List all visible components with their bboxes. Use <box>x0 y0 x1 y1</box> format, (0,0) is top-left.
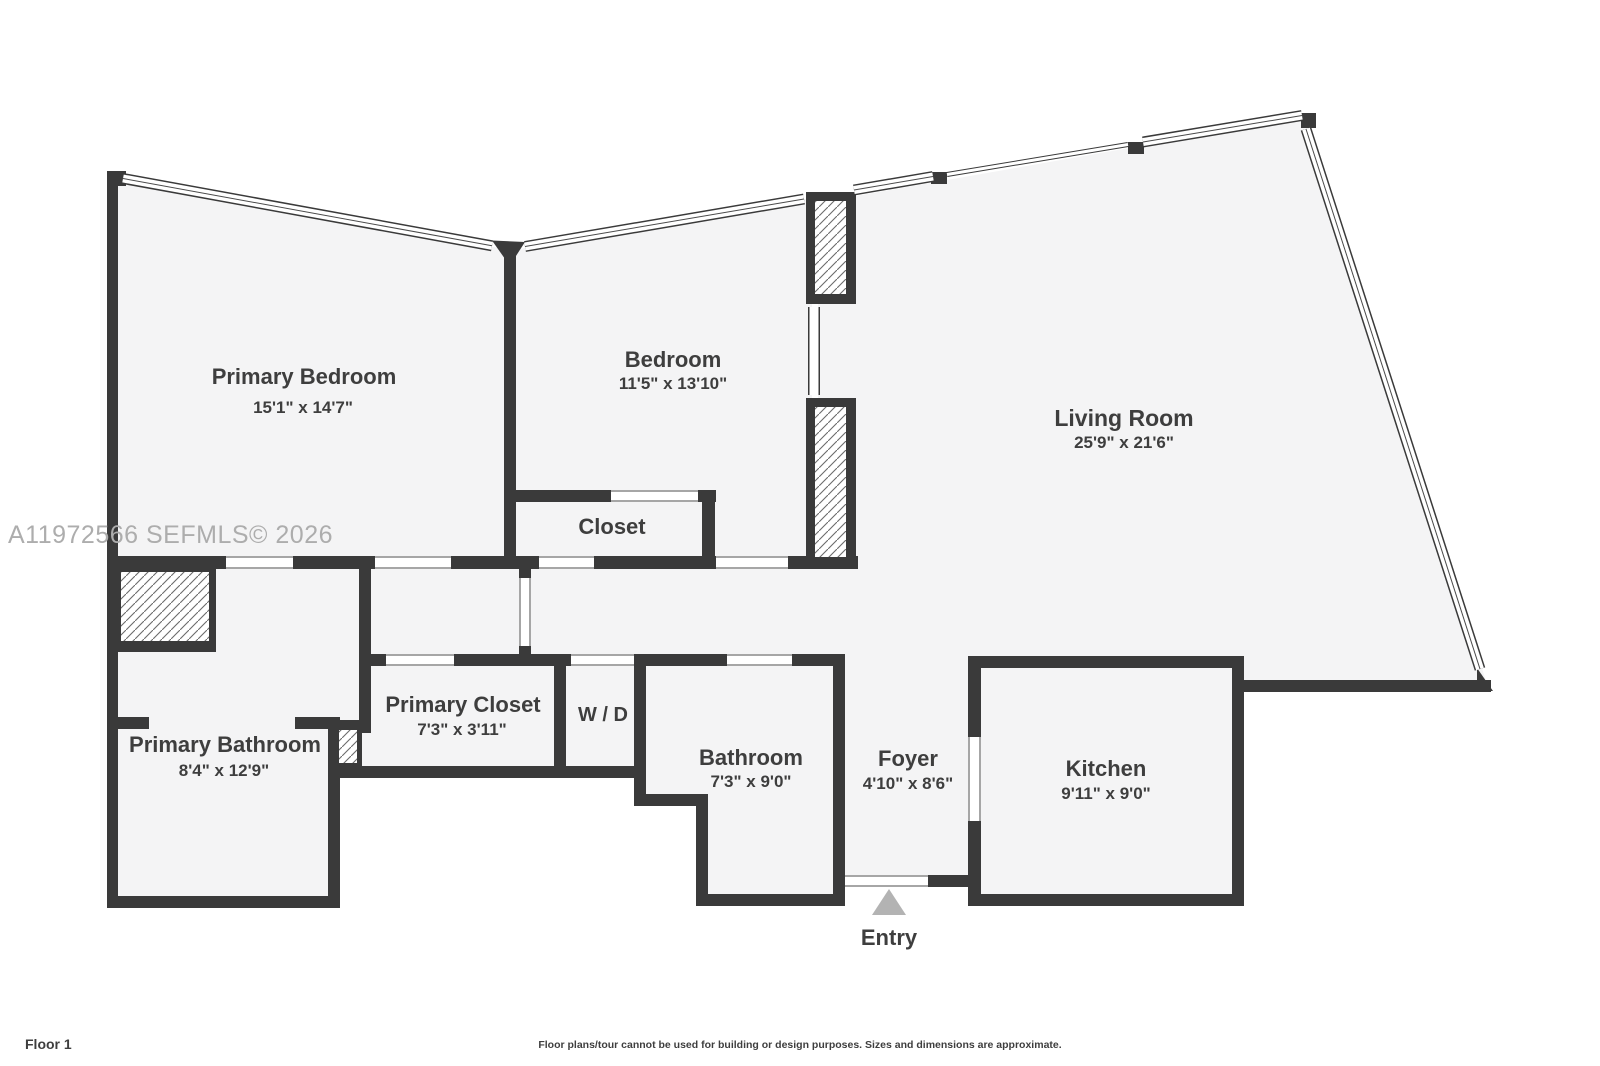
svg-text:Primary Bedroom: Primary Bedroom <box>212 364 397 389</box>
svg-text:25'9" x 21'6": 25'9" x 21'6" <box>1074 433 1174 452</box>
svg-text:Bedroom: Bedroom <box>625 347 722 372</box>
svg-text:Bathroom: Bathroom <box>699 745 803 770</box>
svg-text:Foyer: Foyer <box>878 746 938 771</box>
svg-text:W / D: W / D <box>578 704 628 726</box>
svg-text:Primary Bathroom: Primary Bathroom <box>129 732 321 757</box>
svg-text:Kitchen: Kitchen <box>1066 756 1147 781</box>
svg-text:Floor 1: Floor 1 <box>25 1036 72 1052</box>
svg-text:Primary Closet: Primary Closet <box>385 692 541 717</box>
svg-text:A11972566 SEFMLS© 2026: A11972566 SEFMLS© 2026 <box>8 521 333 549</box>
svg-text:7'3" x 9'0": 7'3" x 9'0" <box>711 772 792 791</box>
svg-text:8'4" x 12'9": 8'4" x 12'9" <box>179 761 269 780</box>
svg-text:4'10" x 8'6": 4'10" x 8'6" <box>863 774 953 793</box>
svg-text:Living Room: Living Room <box>1054 405 1193 431</box>
svg-text:Entry: Entry <box>861 925 918 950</box>
svg-text:15'1" x 14'7": 15'1" x 14'7" <box>253 398 353 417</box>
svg-text:11'5" x 13'10": 11'5" x 13'10" <box>619 374 727 393</box>
svg-text:Closet: Closet <box>578 514 646 539</box>
svg-text:9'11" x 9'0": 9'11" x 9'0" <box>1061 784 1150 803</box>
svg-text:7'3" x 3'11": 7'3" x 3'11" <box>417 720 506 739</box>
svg-text:Floor plans/tour cannot be use: Floor plans/tour cannot be used for buil… <box>538 1039 1061 1051</box>
